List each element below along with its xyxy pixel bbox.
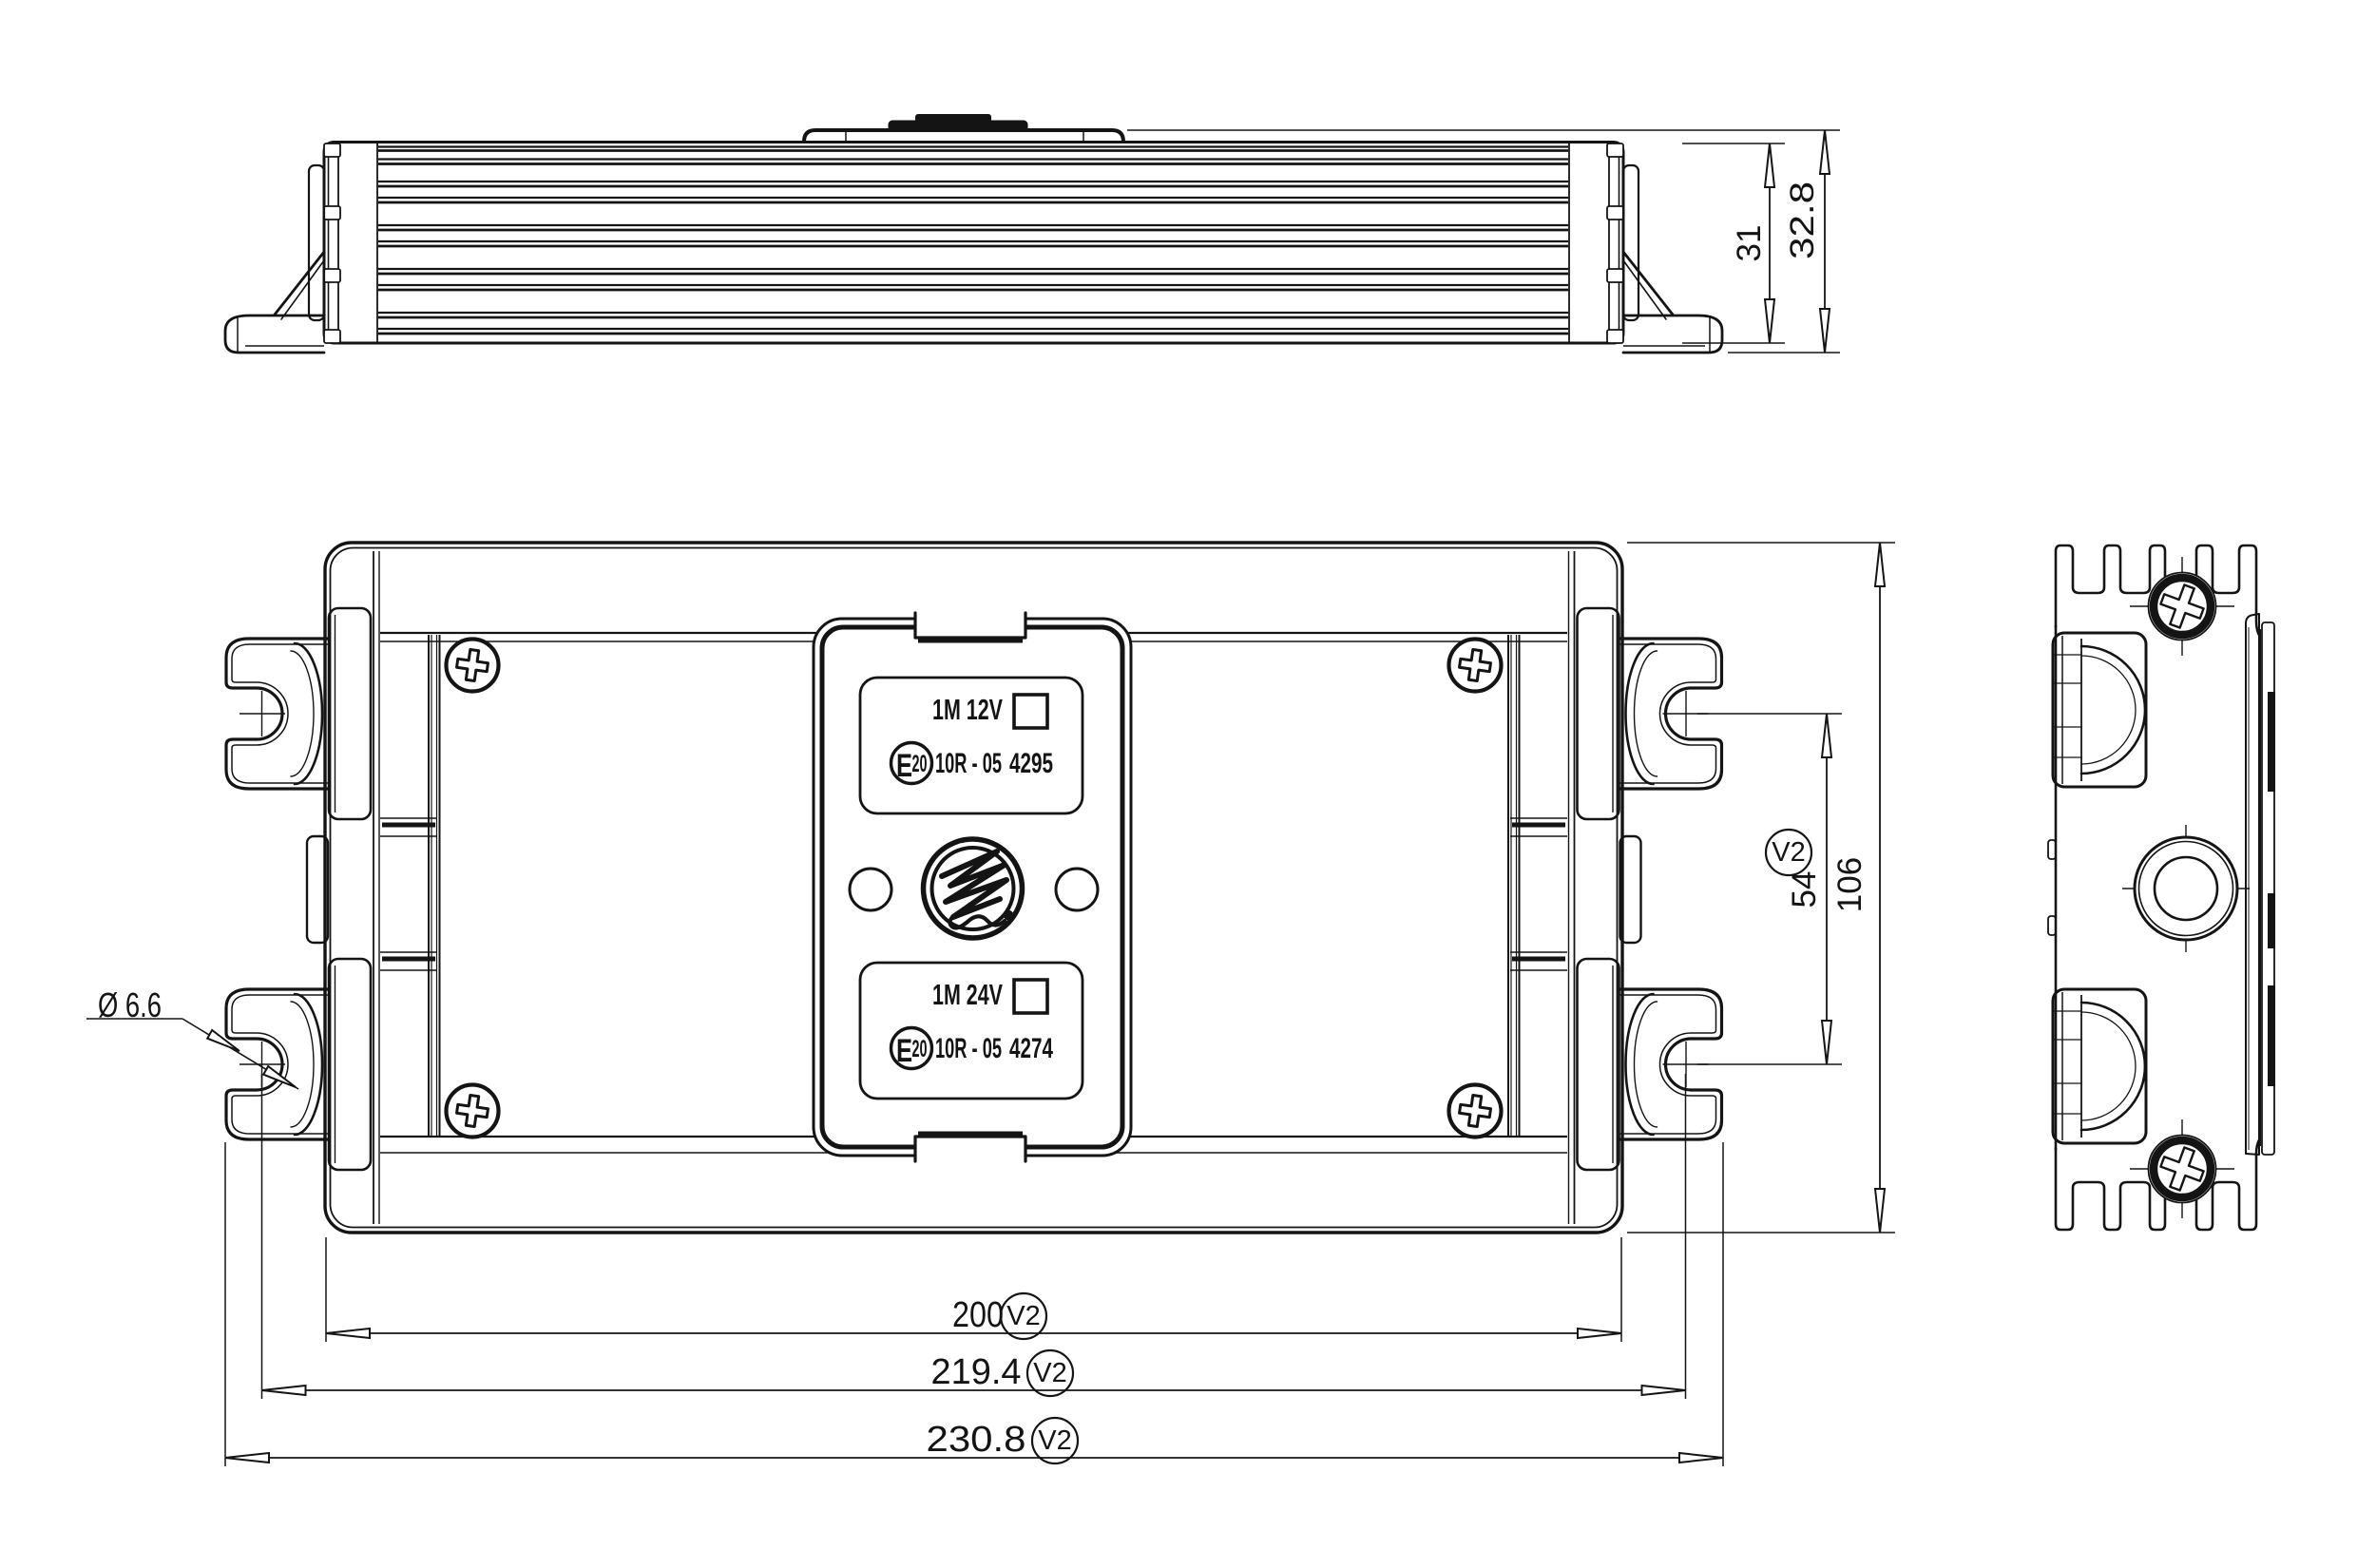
- svg-text:V2: V2: [1006, 1301, 1040, 1331]
- svg-text:31: 31: [1731, 225, 1768, 262]
- svg-text:1M 12V: 1M 12V: [932, 693, 1003, 726]
- svg-text:4295: 4295: [1009, 748, 1053, 779]
- svg-text:10R - 05: 10R - 05: [935, 1033, 1002, 1064]
- svg-text:200: 200: [952, 1295, 1004, 1335]
- svg-text:4274: 4274: [1009, 1033, 1053, 1064]
- svg-text:54: 54: [1786, 871, 1823, 908]
- svg-text:E: E: [896, 748, 912, 784]
- svg-text:E: E: [896, 1033, 912, 1069]
- svg-text:V2: V2: [1033, 1358, 1066, 1388]
- svg-text:1M 24V: 1M 24V: [932, 978, 1003, 1011]
- svg-text:V2: V2: [1038, 1425, 1071, 1456]
- svg-text:230.8: 230.8: [927, 1420, 1026, 1460]
- svg-text:20: 20: [912, 1036, 928, 1062]
- svg-text:32.8: 32.8: [1784, 182, 1821, 259]
- svg-text:10R - 05: 10R - 05: [935, 748, 1002, 779]
- svg-text:219.4: 219.4: [931, 1352, 1022, 1392]
- svg-text:20: 20: [912, 751, 928, 777]
- svg-text:106: 106: [1831, 857, 1868, 912]
- svg-text:V2: V2: [1772, 837, 1805, 868]
